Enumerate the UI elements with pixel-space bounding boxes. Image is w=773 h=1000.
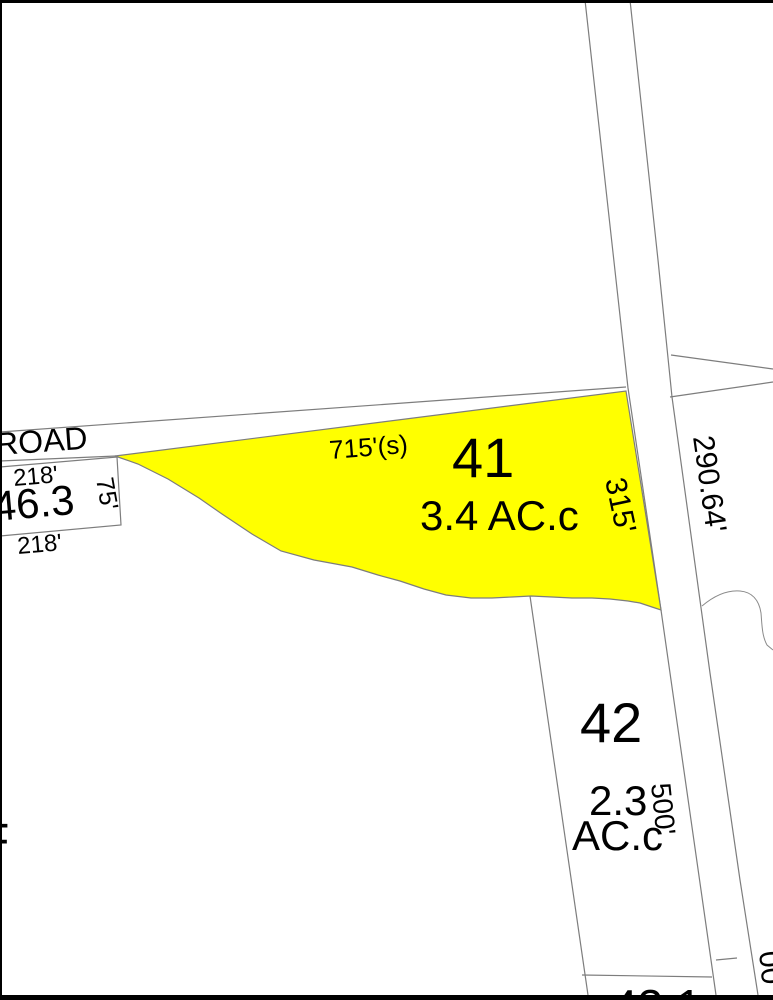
parcel-41-number: 41 xyxy=(452,426,514,489)
road-name-label: ROAD xyxy=(0,420,89,463)
parcel-41-shape[interactable] xyxy=(115,391,661,610)
parcel-map-svg: ROAD 218' 46.3 75' 218' 715'(s) 41 3.4 A… xyxy=(0,0,773,1000)
east-road-south-edge-line xyxy=(670,382,773,397)
parcel-42-west-boundary-line xyxy=(530,596,588,995)
parcel-46-3-bottom-dimension: 218' xyxy=(16,529,63,560)
parcel-41-area: 3.4 AC.c xyxy=(420,492,579,539)
stream-boundary-line xyxy=(702,591,773,650)
parcel-41-frontage-dimension: 715'(s) xyxy=(328,429,409,465)
right-edge-dimension-partial: 00 xyxy=(752,949,773,986)
east-road-north-edge-line xyxy=(671,355,773,369)
map-border-left xyxy=(0,0,2,1000)
tax-map-canvas: ROAD 218' 46.3 75' 218' 715'(s) 41 3.4 A… xyxy=(0,0,773,1000)
parcel-42-side-dimension: 500' xyxy=(645,781,681,836)
map-border-top xyxy=(0,0,773,3)
parcel-46-3-number: 46.3 xyxy=(0,476,76,530)
parcel-42-south-boundary-line xyxy=(582,975,712,977)
road-crossing-tick-line xyxy=(716,958,737,960)
parcel-42-number: 42 xyxy=(580,691,642,754)
map-border-bottom xyxy=(0,995,773,1000)
parcel-46-3-side-dimension: 75' xyxy=(90,475,123,512)
east-parcel-road-dimension: 290.64' xyxy=(686,433,732,534)
